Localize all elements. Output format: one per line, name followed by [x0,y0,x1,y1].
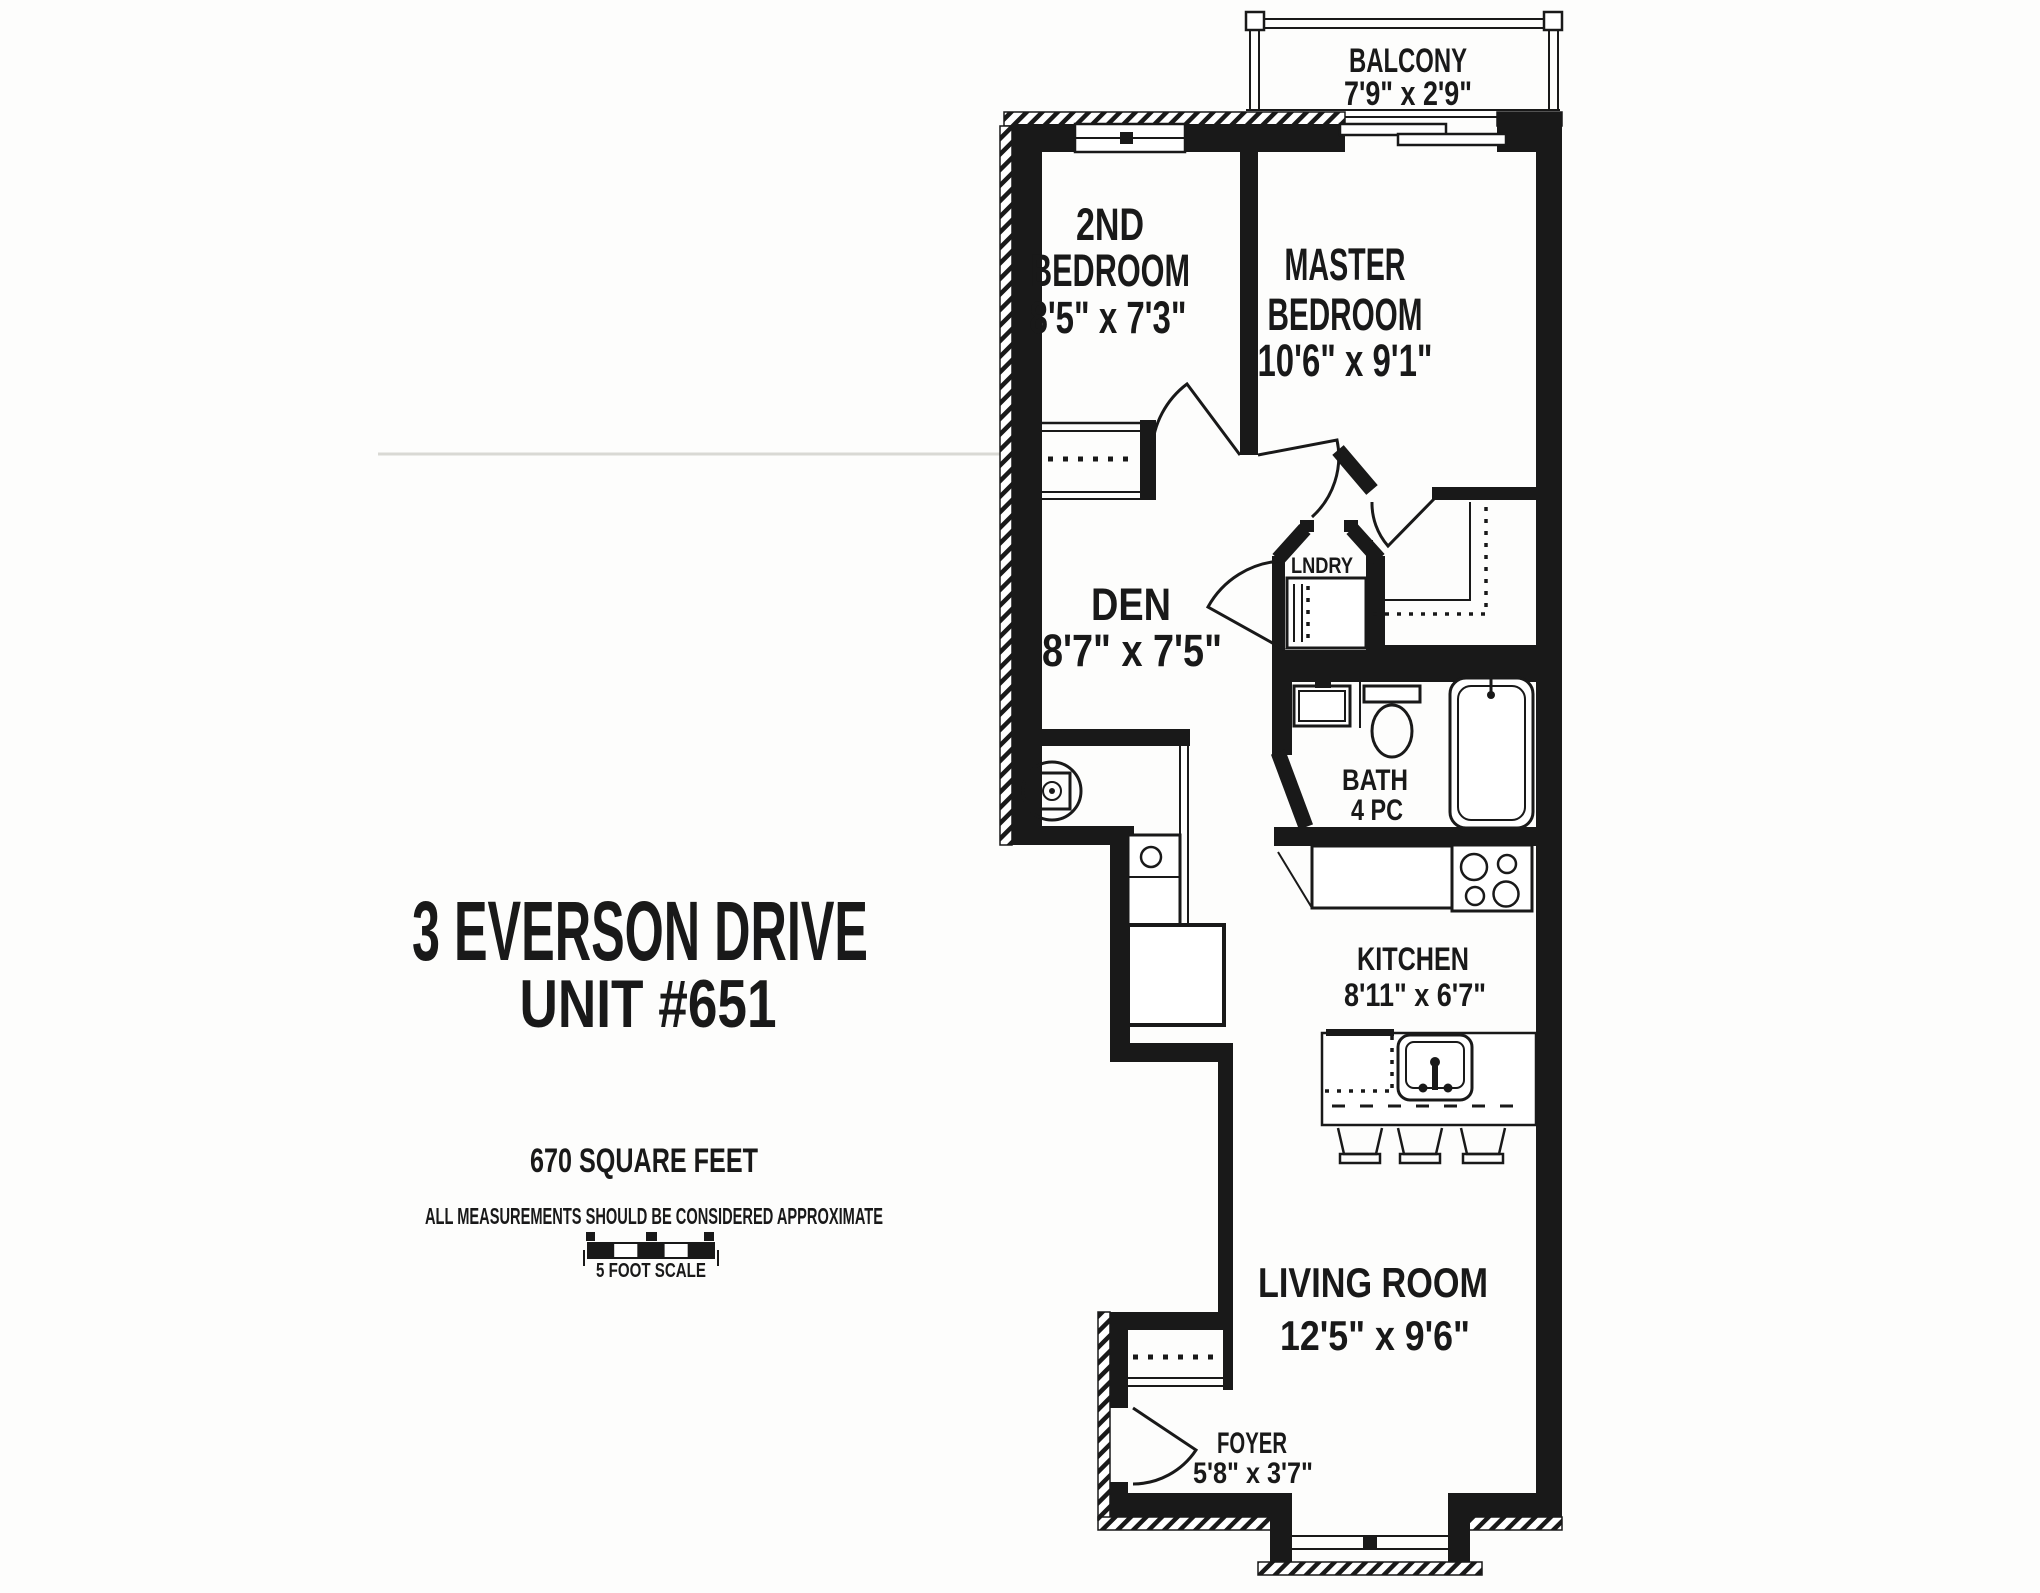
balcony-sliding-door [1340,124,1506,145]
master-closet-door [1372,499,1434,546]
kitchen-label: KITCHEN [1357,941,1469,977]
master-walkin-closet [1373,502,1486,614]
bath-label: BATH [1342,764,1408,797]
foyer-label: FOYER [1217,1427,1287,1460]
address-title-line1: 3 EVERSON DRIVE [412,884,868,978]
bedroom2-dims: 8'5" x 7'3" [1030,292,1187,343]
laundry-label: LNDRY [1291,553,1353,578]
bedroom2-closet [1042,423,1140,499]
floor-plan-drawing: BALCONY 7'9" x 2'9" 2ND BEDROOM 8'5" x 7… [0,0,2040,1593]
bedroom2-window [1075,124,1185,152]
counter-with-sink [1128,835,1180,925]
balcony-dims: 7'9" x 2'9" [1344,75,1472,113]
kitchen-dims: 8'11" x 6'7" [1344,977,1486,1013]
foyer-closet [1128,1357,1223,1386]
living-room-dims: 12'5" x 9'6" [1280,1312,1470,1359]
bath-sink [1294,681,1350,726]
bar-stools [1338,1128,1505,1163]
bath-dims: 4 PC [1351,794,1403,827]
bedroom2-door [1152,384,1240,455]
entry-door [1133,1408,1196,1484]
master-dims: 10'6" x 9'1" [1258,335,1433,386]
fridge [1128,925,1224,1025]
disclaimer-text: ALL MEASUREMENTS SHOULD BE CONSIDERED AP… [425,1203,883,1229]
master-label-line1: MASTER [1285,239,1406,290]
bedroom2-label-line2: BEDROOM [1030,245,1190,296]
living-room-label: LIVING ROOM [1258,1259,1488,1306]
bay-window [1292,1536,1448,1549]
master-door [1258,440,1339,517]
bathtub [1450,678,1533,828]
washer [1287,578,1366,648]
floor-plan-page: BALCONY 7'9" x 2'9" 2ND BEDROOM 8'5" x 7… [0,0,2040,1593]
master-label-line2: BEDROOM [1268,289,1423,340]
scale-bar-label: 5 FOOT SCALE [596,1260,706,1282]
toilet [1364,686,1420,757]
foyer-dims: 5'8" x 3'7" [1193,1457,1313,1490]
bedroom2-label-line1: 2ND [1076,199,1144,250]
square-footage: 670 SQUARE FEET [530,1142,758,1180]
kitchen-counter [1278,846,1452,908]
den-label: DEN [1091,579,1171,630]
island-sink [1398,1035,1472,1100]
stove [1452,845,1532,911]
address-title-line2: UNIT #651 [520,966,777,1042]
den-dims: 8'7" x 7'5" [1042,625,1222,676]
